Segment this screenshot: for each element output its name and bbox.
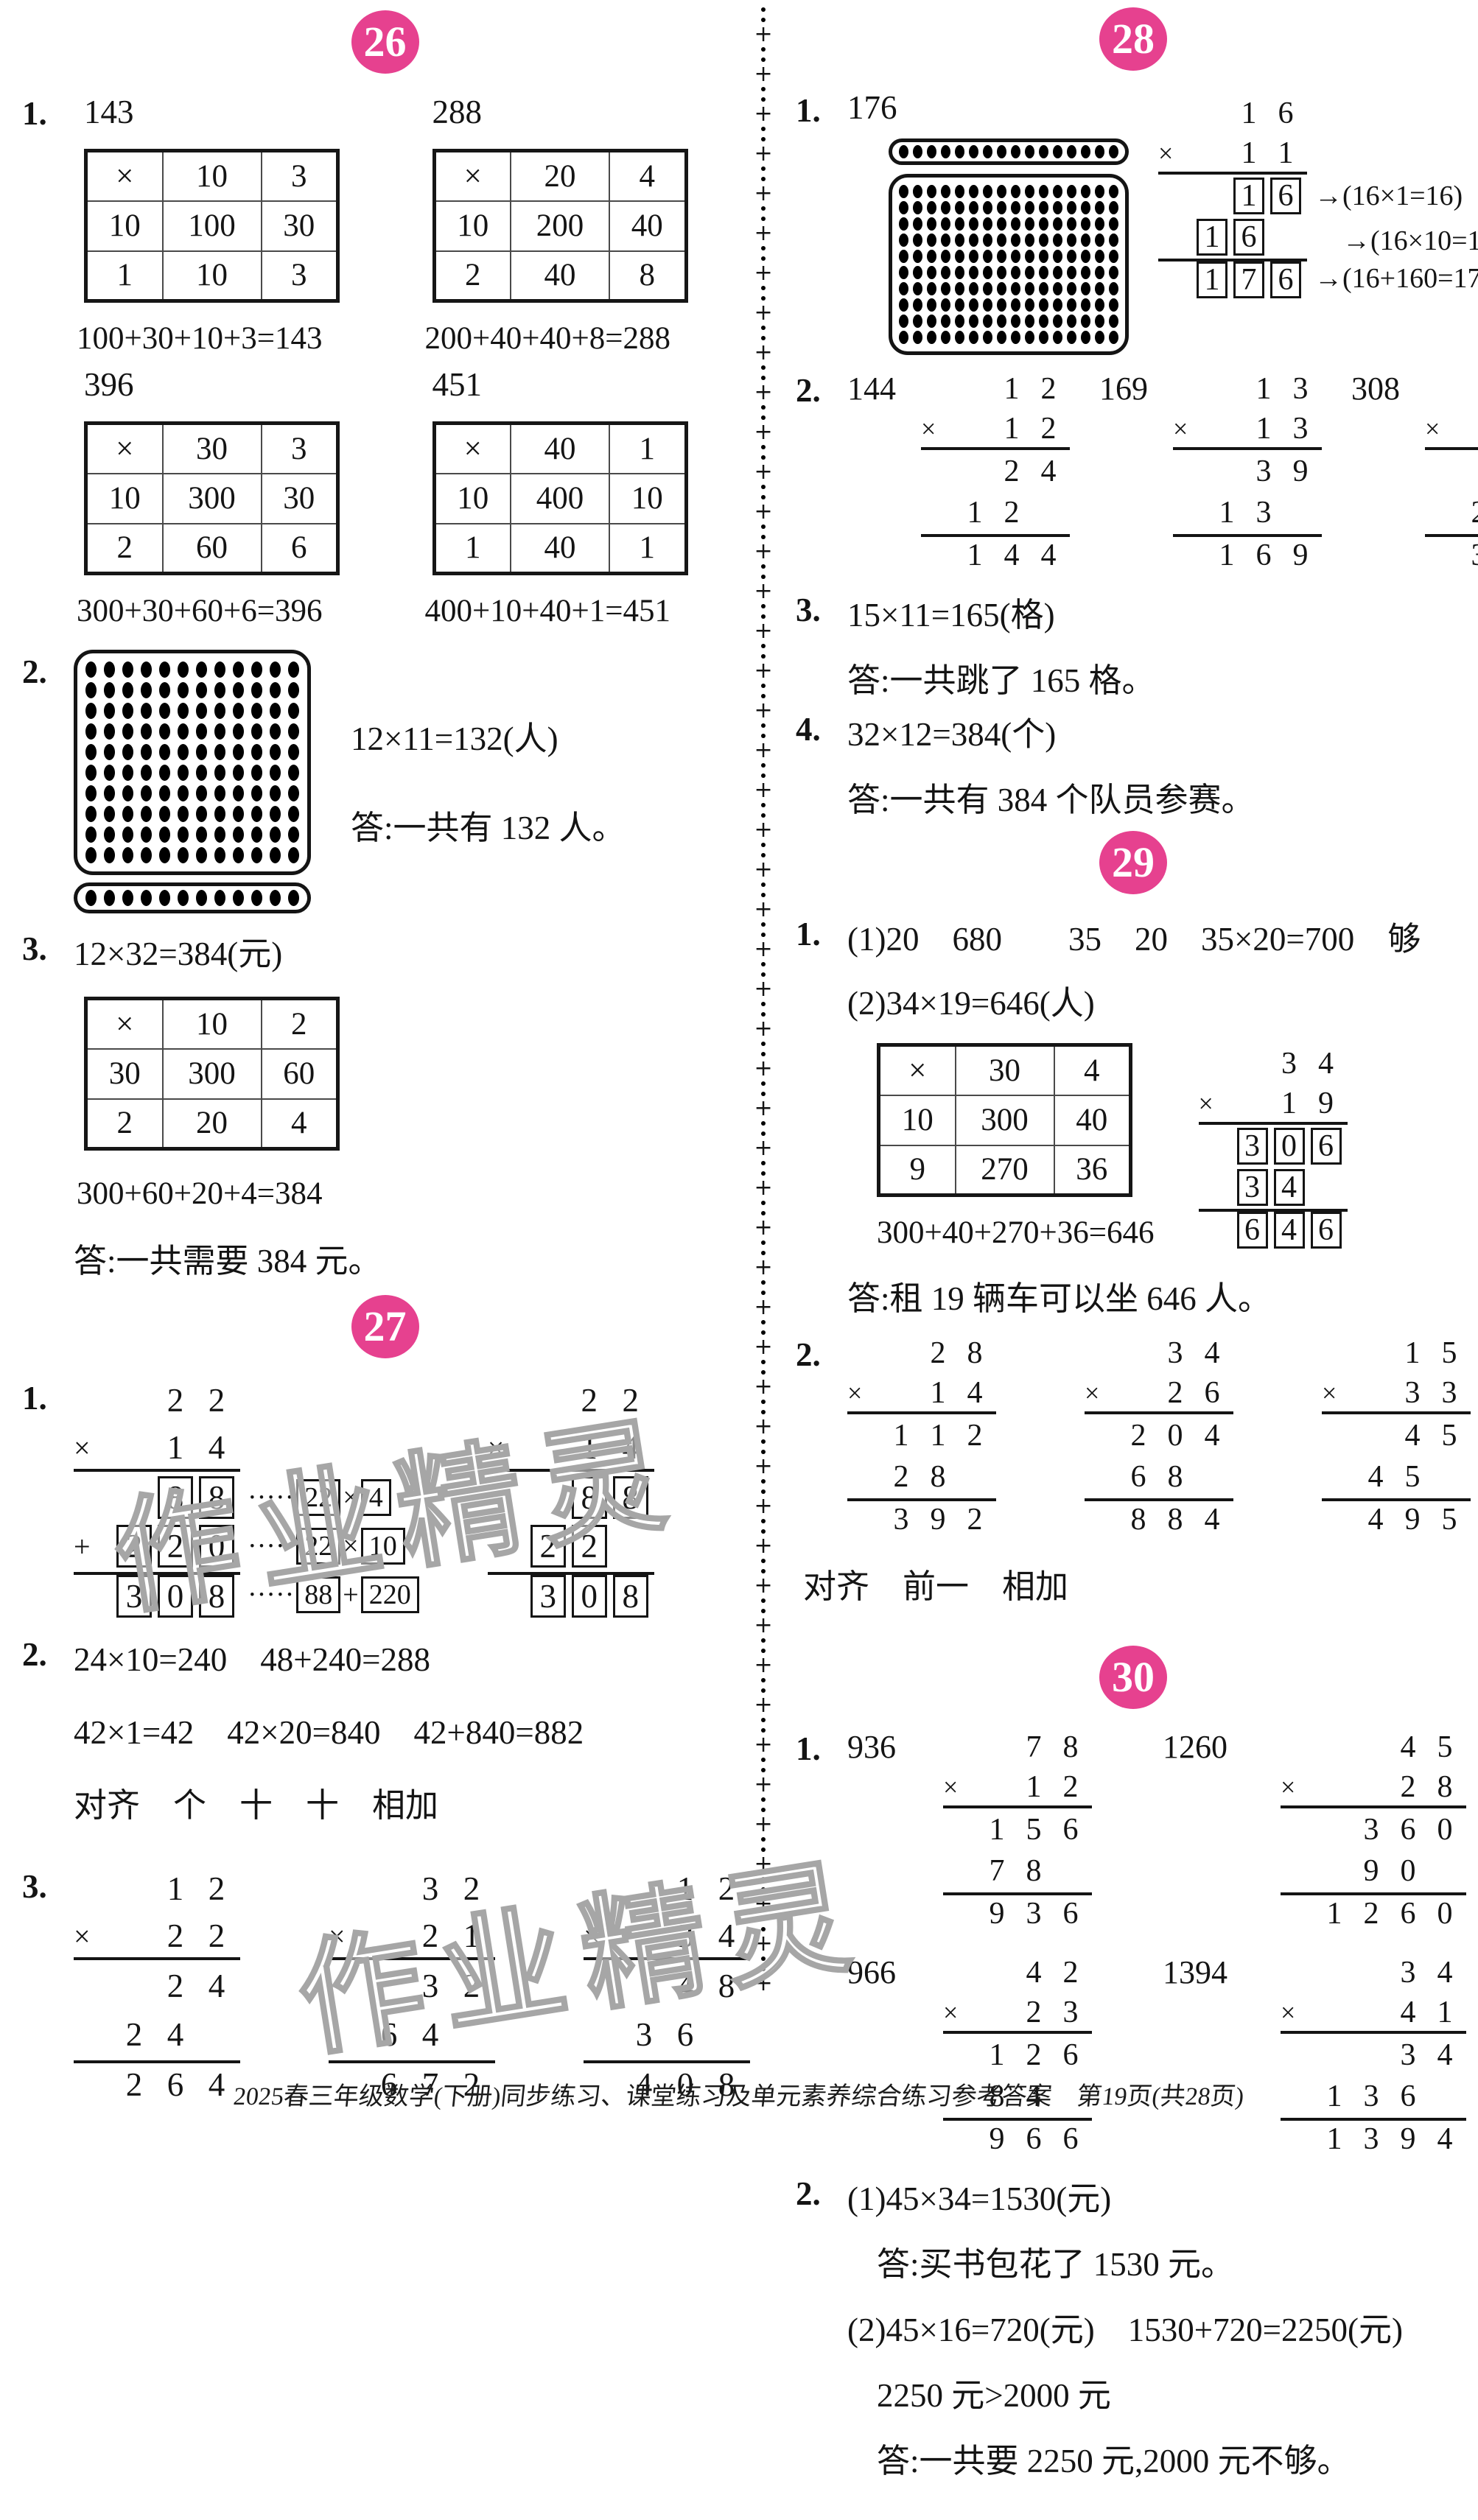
digit-cell: 3 <box>528 1575 569 1618</box>
expression: 32×12=384(个) <box>847 707 1471 755</box>
dot <box>997 282 1006 295</box>
labeled-multiplication: 1394 34×41341361394 <box>1163 1952 1471 2158</box>
digit-cell: 9 <box>1308 1085 1345 1122</box>
dot <box>141 703 152 719</box>
vmult-line: 308 <box>74 1572 240 1618</box>
divider-dot <box>761 843 766 847</box>
problem-26-1: 1. 143 ×10310100301103 100+30+10+3=143 2… <box>22 91 748 636</box>
digit-cell: 9 <box>1353 1853 1390 1889</box>
dot <box>927 266 936 279</box>
answer-sentence: 答:一共跳了 165 格。 <box>847 653 1471 701</box>
digit-cell: 4 <box>1357 1459 1394 1495</box>
divider-plus: + <box>754 1576 772 1596</box>
dot <box>1067 217 1076 231</box>
digit-cell: 1 <box>1394 1335 1431 1372</box>
dot <box>1025 185 1034 198</box>
table-cell: 20 <box>511 151 609 201</box>
vmult-line: 24 <box>74 1965 240 2007</box>
dot <box>251 723 262 740</box>
digit-cell: 6 <box>1267 95 1304 132</box>
digit-cell: 1 <box>1208 537 1245 574</box>
answer-sentence: 答:买书包花了 1530 元。 <box>877 2237 1471 2285</box>
digit-cell <box>1234 1045 1271 1082</box>
table-row: 2204 <box>86 1099 338 1149</box>
dot <box>159 806 170 822</box>
dot <box>1039 331 1048 344</box>
digit-cell: 1 <box>155 1867 196 1910</box>
dot <box>196 703 207 719</box>
dot <box>233 661 244 678</box>
annotation-box: 22 <box>296 1479 340 1516</box>
dot <box>955 185 964 198</box>
divider-plus: + <box>754 1934 772 1954</box>
digit-cell: 2 <box>196 1379 237 1422</box>
vmult-row: ×14 <box>488 1425 654 1473</box>
digit-cell: 9 <box>1282 537 1319 574</box>
dot <box>1053 234 1062 247</box>
digit-cell: 8 <box>196 1575 237 1618</box>
vmult-row: 34 <box>1199 1043 1348 1084</box>
digit-cell <box>113 1914 155 1957</box>
divider-dot <box>761 7 766 12</box>
digit-cell: 1 <box>978 1811 1015 1848</box>
vmult-line: 22 <box>488 1379 654 1422</box>
digit-cell <box>1353 2037 1390 2074</box>
vmult-line: ×21 <box>329 1914 495 1960</box>
divider-dot <box>761 87 766 91</box>
divider-dot <box>761 604 766 608</box>
digit-cell: 3 <box>1234 1169 1271 1206</box>
dot <box>1025 282 1034 295</box>
digit-cell: 2 <box>1353 1895 1390 1932</box>
vmult-line: ×14 <box>74 1426 240 1472</box>
annotation-box: 88 <box>296 1576 340 1613</box>
table-row: ×303 <box>86 424 338 474</box>
operator-sign: × <box>74 1919 113 1954</box>
vmult-row: 28 <box>1425 451 1478 492</box>
table-cell: × <box>879 1045 956 1095</box>
dot <box>178 826 189 843</box>
digit-cell: 5 <box>1394 1459 1431 1495</box>
dot <box>941 217 950 231</box>
dot-array <box>889 138 1129 355</box>
digit-cell: 1 <box>1194 219 1230 256</box>
dot <box>270 661 281 678</box>
digit-cell <box>1353 1994 1390 2031</box>
dot <box>270 744 281 760</box>
digit-cell: 2 <box>451 1965 492 2007</box>
vmult-line: 34 <box>1199 1045 1348 1082</box>
boxed-digit: 6 <box>1237 1212 1268 1249</box>
product-label: 144 <box>847 368 896 575</box>
digit-cell: 8 <box>1015 1853 1052 1889</box>
digit-cell: 3 <box>1015 1895 1052 1932</box>
vmult-line: 28 <box>1425 453 1478 490</box>
table-row: 1401 <box>434 524 686 574</box>
problem-30-2: 2. (1)45×34=1530(元) 答:买书包花了 1530 元。 (2)4… <box>796 2172 1471 2507</box>
vmult-row: 22 <box>488 1522 654 1570</box>
divider-plus: + <box>754 1417 772 1436</box>
dot <box>927 145 936 158</box>
dot <box>1081 250 1090 263</box>
vmult-row: 1394 <box>1281 2117 1466 2158</box>
dot <box>122 744 133 760</box>
vmult-row: 28 <box>847 1333 996 1374</box>
table-cell: 30 <box>262 201 338 251</box>
vmult-row: 156 <box>943 1809 1092 1850</box>
vmult-row: ×21 <box>329 1913 495 1962</box>
digit-cell <box>368 1965 410 2007</box>
operator-sign: × <box>1281 1997 1316 2028</box>
answer-sentence: 答:一共有 132 人。 <box>351 801 626 849</box>
expression: 15×11=165(格) <box>847 588 1471 636</box>
digit-cell: 6 <box>1194 1375 1230 1411</box>
vmult-line: ×14 <box>488 1426 654 1472</box>
dot <box>141 723 152 740</box>
digit-cell: 3 <box>883 1501 920 1538</box>
digit-cell: 7 <box>1015 1729 1052 1766</box>
dot <box>969 315 978 328</box>
area-model-table-143: ×10310100301103 <box>84 149 400 303</box>
digit-cell <box>1357 1335 1394 1372</box>
digit-cell <box>883 1375 920 1411</box>
dot <box>159 847 170 863</box>
dot <box>927 282 936 295</box>
annotation-box: 22 <box>296 1528 340 1565</box>
digit-cell: 1 <box>1271 1085 1308 1122</box>
dot <box>178 806 189 822</box>
dot <box>1067 282 1076 295</box>
digit-cell: 4 <box>1390 1994 1426 2031</box>
dot <box>1095 145 1104 158</box>
dot <box>1011 250 1020 263</box>
digit-cell: 2 <box>706 1867 747 1910</box>
digit-cell: 3 <box>410 1867 451 1910</box>
dot <box>899 331 908 344</box>
vmult-row: 15 <box>1322 1333 1471 1374</box>
digit-cell: 8 <box>1157 1501 1194 1538</box>
vmult-row: 28 <box>1425 492 1478 533</box>
divider-plus: + <box>754 1656 772 1675</box>
operator-sign: × <box>488 1431 528 1465</box>
vmult-row: ×41 <box>1281 1993 1466 2035</box>
dot <box>141 806 152 822</box>
divider-plus: + <box>754 1537 772 1556</box>
digit-cell: 2 <box>993 494 1030 531</box>
vmult-row: +220·····22×10 <box>74 1522 421 1570</box>
dot <box>1053 250 1062 263</box>
digit-cell <box>1030 494 1067 531</box>
right-column: 28 1. 176 16×1116→(16×1=16)16 →(16×10=16… <box>796 0 1471 2520</box>
divider-plus: + <box>754 1855 772 1874</box>
digit-cell: 2 <box>1120 1417 1157 1454</box>
dot-array <box>74 650 311 913</box>
vmult-row: 90 <box>1281 1850 1466 1892</box>
dot <box>1011 234 1020 247</box>
divider-dot <box>761 1042 766 1046</box>
dot <box>913 282 922 295</box>
dot <box>1053 145 1062 158</box>
vmult-line: 24 <box>921 453 1070 490</box>
item-number: 4. <box>796 707 847 821</box>
dot <box>1011 145 1020 158</box>
table-cell: 10 <box>86 474 163 524</box>
vmult-line: 308 <box>488 1572 654 1618</box>
dot <box>159 890 170 906</box>
dot <box>196 847 207 863</box>
digit-cell: 5 <box>1431 1417 1468 1454</box>
divider-plus: + <box>754 1696 772 1715</box>
boxed-digit: 6 <box>1270 262 1301 298</box>
digit-cell: 1 <box>920 1417 956 1454</box>
digit-cell <box>623 1914 665 1957</box>
operator-sign: × <box>329 1919 368 1954</box>
table-cell: 40 <box>511 424 609 474</box>
dot <box>983 331 992 344</box>
digit-cell: 2 <box>1052 1769 1089 1805</box>
dot-strip <box>74 882 311 913</box>
table-cell: 3 <box>262 151 338 201</box>
dot <box>270 703 281 719</box>
workbook-answer-page: { "page": { "badge_color": "#e6418f", "w… <box>0 0 1478 2122</box>
work-line: (1)20 680 35 20 35×20=700 够 <box>847 912 1471 960</box>
table-cell: 2 <box>86 1099 163 1149</box>
vmult-line: ×14 <box>847 1375 996 1414</box>
vertical-multiplication-28x14: 28×1411228392 <box>847 1333 996 1539</box>
table-row: 1030040 <box>879 1095 1131 1145</box>
digit-cell: 1 <box>1015 1769 1052 1805</box>
digit-cell <box>956 410 993 447</box>
digit-cell <box>1316 1811 1353 1848</box>
digit-cell: 4 <box>196 1426 237 1469</box>
vertical-multiplication-78x12: 78×1215678936 <box>943 1727 1092 1933</box>
dot <box>141 765 152 781</box>
digit-cell: 1 <box>978 2037 1015 2074</box>
vmult-row: ×12 <box>921 410 1070 451</box>
digit-cell: 2 <box>956 1501 993 1538</box>
vmult-line: ×11 <box>1158 135 1307 175</box>
answer-sentence: 答:一共要 2250 元,2000 元不够。 <box>877 2434 1471 2482</box>
divider-dot <box>761 246 766 250</box>
vmult-row: ×28 <box>1281 1768 1466 1809</box>
table-cell: 6 <box>262 524 338 574</box>
boxed-digit: 1 <box>1197 262 1227 298</box>
dot <box>141 785 152 801</box>
boxed-digit: 3 <box>116 1575 152 1618</box>
digit-cell: 6 <box>1052 1811 1089 1848</box>
digit-cell <box>1316 1954 1353 1991</box>
product-label: 451 <box>432 365 749 404</box>
digit-cell <box>610 1525 651 1568</box>
vmult-row: 13 <box>1173 368 1322 410</box>
dot <box>1025 250 1034 263</box>
dot <box>983 298 992 312</box>
vmult-row: 24 <box>74 1962 240 2010</box>
item-number: 1. <box>796 88 847 355</box>
vmult-row: 42 <box>943 1952 1092 1993</box>
dot-strip <box>889 138 1129 165</box>
digit-cell: 6 <box>1234 1212 1271 1249</box>
digit-cell: 4 <box>1030 537 1067 574</box>
dot <box>1039 266 1048 279</box>
divider-plus: + <box>754 25 772 44</box>
dot <box>1095 282 1104 295</box>
dot <box>270 826 281 843</box>
vmult-line: 13 <box>1173 494 1322 531</box>
divider-plus: + <box>754 900 772 919</box>
digit-cell: 2 <box>1015 1994 1052 2031</box>
digit-cell <box>1052 1853 1089 1889</box>
digit-cell <box>113 1476 155 1519</box>
section-badge-27: 27 <box>351 1295 419 1358</box>
item-number: 2. <box>796 2172 847 2507</box>
annotation-box: 4 <box>361 1479 391 1516</box>
digit-cell <box>883 1335 920 1372</box>
divider-dot <box>761 127 766 131</box>
boxed-digit: 8 <box>158 1476 193 1519</box>
dot <box>983 201 992 214</box>
problem-27-1: 1. 22×1488·····22×4+220·····22×10308····… <box>22 1376 748 1619</box>
operator-sign: × <box>1173 413 1208 444</box>
dot <box>1067 250 1076 263</box>
operator-sign: × <box>1281 1772 1316 1803</box>
annotation-text: →(16×10=160) <box>1314 217 1478 258</box>
digit-cell <box>1282 494 1319 531</box>
dot <box>1081 185 1090 198</box>
dot <box>214 806 225 822</box>
dot <box>214 661 225 678</box>
boxed-digit: 1 <box>1197 219 1227 256</box>
dot <box>913 298 922 312</box>
dot <box>997 145 1006 158</box>
digit-cell: 4 <box>1426 2121 1463 2158</box>
vmult-line: 45 <box>1322 1417 1471 1454</box>
digit-cell: 1 <box>883 1417 920 1454</box>
problem-29-2: 2. 28×1411228392 34×2620468884 15×334545… <box>796 1333 1471 1632</box>
dot <box>141 826 152 843</box>
vertical-multiplication-34x19-boxed: 34×1930634646 <box>1199 1043 1348 1258</box>
digit-cell <box>1316 2037 1353 2074</box>
area-model-grid: 143 ×10310100301103 100+30+10+3=143 288 … <box>74 91 748 636</box>
vmult-row: 13 <box>1173 492 1322 533</box>
dot <box>1025 234 1034 247</box>
vmult-row: ×14 <box>847 1374 996 1415</box>
section-badge-29: 29 <box>1099 831 1167 894</box>
digit-cell: 3 <box>665 1914 706 1957</box>
dot <box>969 282 978 295</box>
digit-cell: 3 <box>1245 494 1282 531</box>
digit-cell: 6 <box>1230 219 1267 256</box>
column-divider: ++++++++++++++++++++++++++++++++++++++++… <box>754 4 772 2089</box>
boxed-digit: 7 <box>1233 262 1264 298</box>
digit-cell <box>528 1476 569 1519</box>
dot <box>1081 331 1090 344</box>
vmult-line: 45 <box>1281 1729 1466 1766</box>
item-number: 2. <box>22 1632 74 1851</box>
table-row: ×204 <box>434 151 686 201</box>
dot <box>159 826 170 843</box>
annotation-text: →(16+160=176) <box>1314 262 1478 295</box>
dot <box>1053 201 1062 214</box>
dot <box>983 282 992 295</box>
dot <box>214 765 225 781</box>
divider-plus: + <box>754 1338 772 1357</box>
digit-cell: 6 <box>368 2013 410 2056</box>
digit-cell: 8 <box>1426 1769 1463 1805</box>
divider-plus: + <box>754 582 772 601</box>
divider-plus: + <box>754 65 772 84</box>
table-cell: 1 <box>609 524 686 574</box>
digit-cell: 4 <box>1030 453 1067 490</box>
dot <box>270 723 281 740</box>
digit-cell: 2 <box>1460 494 1478 531</box>
divider-dot <box>761 206 766 211</box>
divider-plus: + <box>754 303 772 323</box>
area-model: ×10310100301103 <box>84 149 340 303</box>
dot <box>178 703 189 719</box>
dot <box>1067 315 1076 328</box>
dot <box>899 250 908 263</box>
table-cell: × <box>86 424 163 474</box>
digit-cell: 0 <box>155 1575 196 1618</box>
dot <box>913 145 922 158</box>
divider-dot <box>761 1519 766 1523</box>
divider-plus: + <box>754 463 772 482</box>
boxed-digit: 3 <box>530 1575 566 1618</box>
dot <box>1025 201 1034 214</box>
vertical-multiplication-42x23: 42×2312684966 <box>943 1952 1092 2158</box>
boxed-digit: 0 <box>158 1575 193 1618</box>
divider-plus: + <box>754 940 772 959</box>
digit-cell <box>1426 1853 1463 1889</box>
dot <box>251 661 262 678</box>
digit-cell: 4 <box>1394 1417 1431 1454</box>
table-cell: 40 <box>511 251 609 301</box>
vmult-line: 88 <box>74 1476 240 1519</box>
vmult-line: 39 <box>1173 453 1322 490</box>
dot <box>196 661 207 678</box>
dot <box>1053 266 1062 279</box>
digit-cell: 4 <box>1194 1501 1230 1538</box>
dot <box>899 201 908 214</box>
dot <box>1095 250 1104 263</box>
dot <box>122 682 133 698</box>
vmult-line: ×33 <box>1322 1375 1471 1414</box>
vmult-row: ×11 <box>1158 134 1478 175</box>
dot <box>1081 282 1090 295</box>
item-number: 1. <box>796 912 847 1319</box>
dot <box>196 806 207 822</box>
dot <box>233 682 244 698</box>
dot <box>288 661 299 678</box>
vertical-multiplication-22x14-annotated: 22×1488·····22×4+220·····22×10308·····88… <box>74 1376 421 1619</box>
vmult-row: 34 <box>1085 1333 1233 1374</box>
operator-sign: × <box>1158 138 1194 169</box>
digit-cell: 2 <box>1030 410 1067 447</box>
vmult-row: 16→(16×1=16) <box>1158 175 1478 217</box>
dot <box>927 298 936 312</box>
dot <box>913 201 922 214</box>
vmult-row: 68 <box>1085 1456 1233 1498</box>
dot <box>1039 217 1048 231</box>
left-column: 26 1. 143 ×10310100301103 100+30+10+3=14… <box>22 0 748 2121</box>
table-cell: 10 <box>86 201 163 251</box>
divider-plus: + <box>754 1258 772 1277</box>
dot <box>270 785 281 801</box>
problem-28-3: 3. 15×11=165(格) 答:一共跳了 165 格。 <box>796 588 1471 701</box>
dot <box>1095 217 1104 231</box>
divider-dot <box>761 47 766 52</box>
